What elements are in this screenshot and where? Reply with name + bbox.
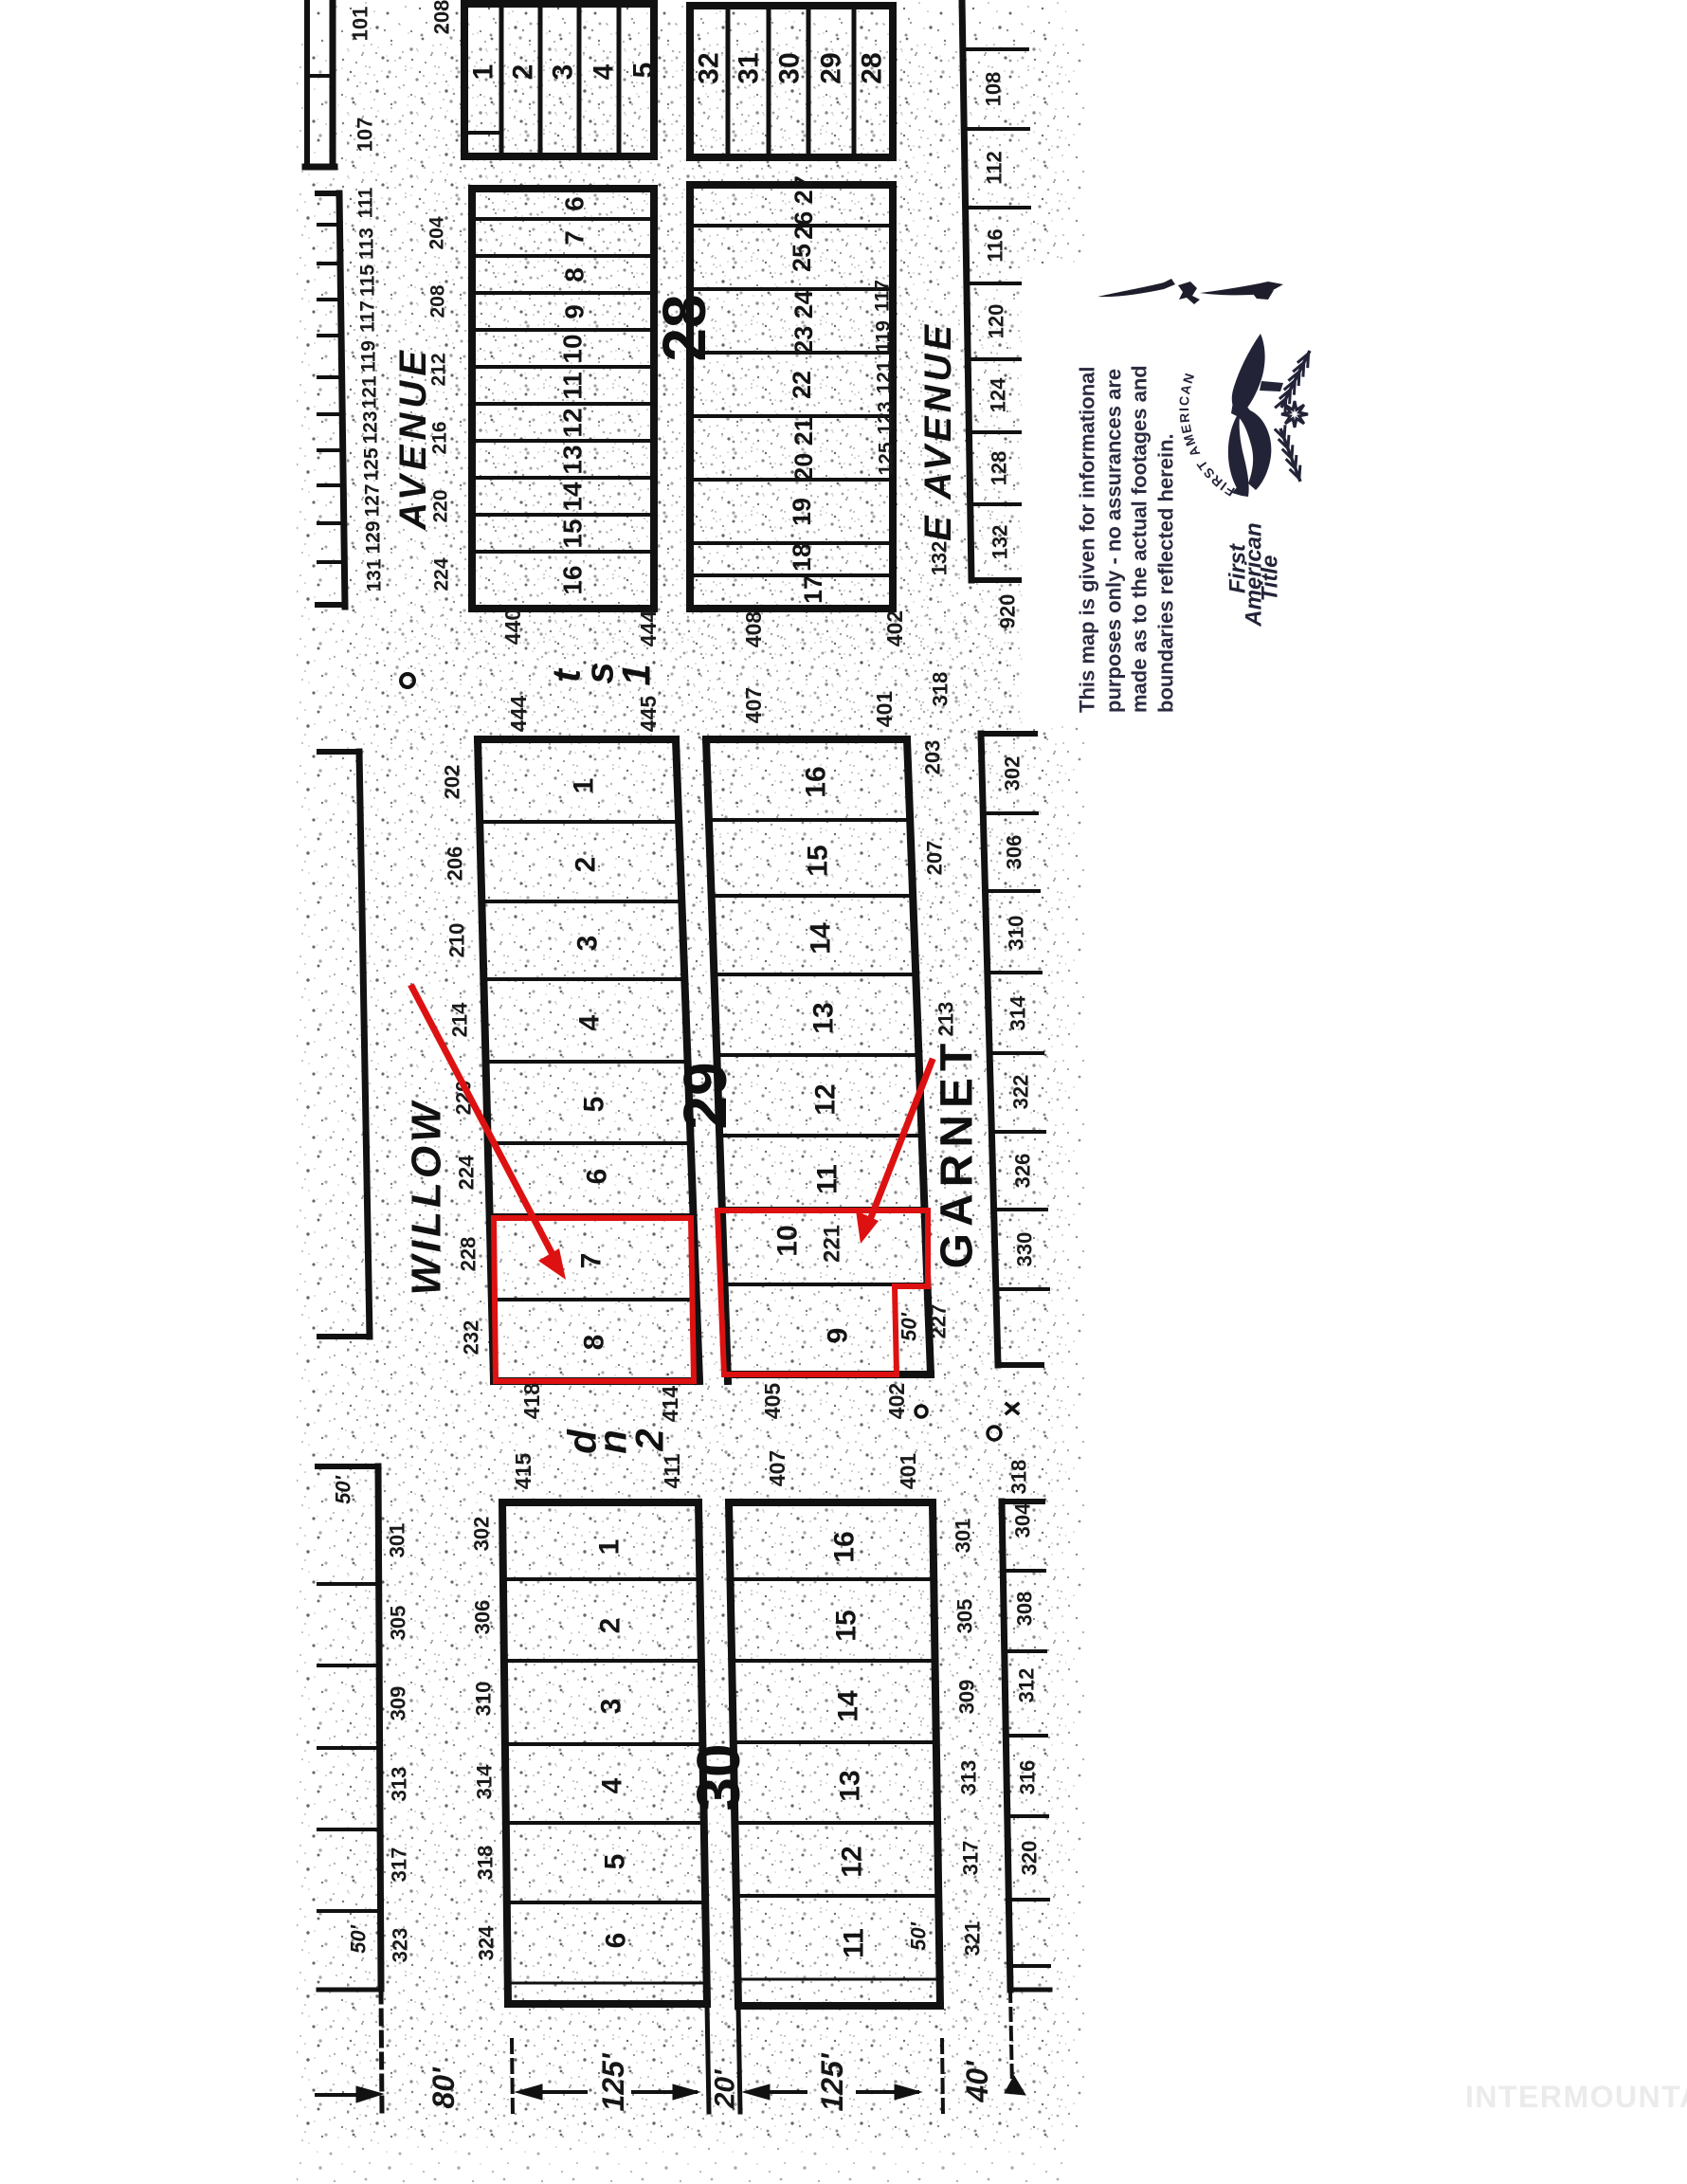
svg-text:407: 407 bbox=[741, 687, 766, 723]
svg-text:317: 317 bbox=[959, 1841, 983, 1876]
svg-text:123: 123 bbox=[360, 410, 382, 444]
svg-text:30: 30 bbox=[684, 1743, 753, 1811]
svg-text:440: 440 bbox=[500, 609, 525, 645]
svg-text:203: 203 bbox=[921, 740, 945, 775]
svg-text:312: 312 bbox=[1015, 1668, 1039, 1703]
svg-text:324: 324 bbox=[475, 1925, 499, 1960]
svg-text:120: 120 bbox=[985, 304, 1008, 339]
svg-text:16: 16 bbox=[829, 1531, 861, 1562]
svg-text:326: 326 bbox=[1011, 1154, 1035, 1189]
svg-text:216: 216 bbox=[429, 421, 451, 454]
svg-text:20': 20' bbox=[710, 2069, 741, 2109]
svg-text:12: 12 bbox=[558, 408, 588, 437]
svg-text:302: 302 bbox=[1001, 756, 1025, 792]
svg-text:314: 314 bbox=[473, 1764, 497, 1799]
svg-text:50': 50' bbox=[907, 1921, 931, 1950]
svg-text:127: 127 bbox=[362, 483, 384, 517]
svg-text:7: 7 bbox=[560, 230, 590, 246]
svg-text:purposes only - no assurances: purposes only - no assurances are bbox=[1102, 369, 1126, 713]
svg-text:125': 125' bbox=[596, 2052, 630, 2111]
svg-text:3: 3 bbox=[596, 1699, 627, 1715]
svg-text:32: 32 bbox=[694, 52, 725, 83]
svg-text:5: 5 bbox=[600, 1854, 631, 1870]
svg-text:16: 16 bbox=[558, 565, 588, 594]
svg-text:920: 920 bbox=[996, 594, 1020, 629]
svg-text:6: 6 bbox=[582, 1169, 613, 1185]
svg-text:306: 306 bbox=[471, 1600, 495, 1635]
svg-text:111: 111 bbox=[355, 187, 377, 218]
svg-text:50': 50' bbox=[347, 1924, 371, 1953]
svg-text:WILLOW: WILLOW bbox=[404, 1099, 450, 1295]
svg-text:4: 4 bbox=[589, 64, 620, 80]
svg-text:304: 304 bbox=[1011, 1502, 1035, 1538]
svg-text:116: 116 bbox=[984, 228, 1007, 263]
svg-text:202: 202 bbox=[441, 765, 464, 800]
svg-text:112: 112 bbox=[983, 151, 1007, 185]
svg-text:306: 306 bbox=[1003, 835, 1026, 870]
svg-text:212: 212 bbox=[428, 353, 450, 386]
svg-text:11: 11 bbox=[839, 1928, 870, 1958]
svg-text:113: 113 bbox=[356, 227, 378, 260]
svg-text:411: 411 bbox=[660, 1453, 684, 1488]
svg-text:80': 80' bbox=[426, 2066, 461, 2109]
svg-text:415: 415 bbox=[511, 1453, 535, 1490]
svg-text:15: 15 bbox=[558, 519, 588, 548]
svg-text:309: 309 bbox=[387, 1686, 410, 1721]
svg-text:13: 13 bbox=[808, 1002, 840, 1033]
svg-text:25: 25 bbox=[788, 244, 816, 272]
svg-text:321: 321 bbox=[961, 1921, 985, 1956]
svg-text:11: 11 bbox=[558, 372, 588, 400]
svg-text:108: 108 bbox=[982, 72, 1006, 107]
svg-text:320: 320 bbox=[1018, 1841, 1042, 1876]
svg-text:50': 50' bbox=[332, 1475, 355, 1503]
svg-text:26 27: 26 27 bbox=[789, 175, 818, 240]
svg-text:224: 224 bbox=[431, 557, 453, 591]
svg-text:6: 6 bbox=[601, 1933, 632, 1949]
svg-text:Title: Title bbox=[1258, 555, 1283, 602]
svg-text:15: 15 bbox=[831, 1610, 862, 1641]
svg-text:9: 9 bbox=[823, 1328, 854, 1344]
svg-text:123: 123 bbox=[875, 401, 897, 434]
svg-text:13: 13 bbox=[558, 445, 588, 474]
svg-text:224: 224 bbox=[455, 1155, 479, 1190]
svg-text:10: 10 bbox=[558, 334, 588, 363]
svg-text:made as to the actual footages: made as to the actual footages and bbox=[1128, 365, 1152, 713]
svg-text:3: 3 bbox=[572, 936, 604, 952]
svg-text:132: 132 bbox=[928, 541, 952, 576]
svg-text:330: 330 bbox=[1013, 1232, 1037, 1267]
svg-text:414: 414 bbox=[658, 1386, 682, 1423]
svg-text:16: 16 bbox=[801, 766, 832, 797]
svg-text:322: 322 bbox=[1009, 1075, 1033, 1110]
svg-text:314: 314 bbox=[1007, 995, 1030, 1030]
svg-text:22: 22 bbox=[788, 371, 816, 399]
svg-text:318: 318 bbox=[929, 672, 952, 707]
svg-text:121: 121 bbox=[359, 375, 381, 409]
svg-text:40': 40' bbox=[960, 2060, 994, 2103]
svg-text:INTERMOUNTAIN: INTERMOUNTAIN bbox=[1465, 2080, 1687, 2114]
svg-text:This map is given for informat: This map is given for informational bbox=[1076, 367, 1099, 714]
svg-text:220: 220 bbox=[430, 489, 452, 522]
svg-text:210: 210 bbox=[445, 923, 469, 958]
svg-text:5: 5 bbox=[579, 1097, 610, 1113]
svg-text:7: 7 bbox=[576, 1253, 608, 1269]
svg-text:28: 28 bbox=[857, 52, 888, 83]
svg-text:206: 206 bbox=[444, 846, 467, 882]
svg-text:18: 18 bbox=[788, 543, 816, 572]
svg-text:305: 305 bbox=[953, 1599, 977, 1634]
svg-text:11: 11 bbox=[812, 1164, 843, 1194]
svg-text:310: 310 bbox=[1005, 916, 1028, 951]
svg-text:119: 119 bbox=[873, 320, 895, 353]
svg-text:14: 14 bbox=[806, 922, 837, 955]
svg-text:117: 117 bbox=[357, 300, 379, 333]
svg-text:408: 408 bbox=[741, 611, 766, 648]
svg-text:227: 227 bbox=[927, 1304, 951, 1339]
svg-text:1: 1 bbox=[594, 1539, 626, 1556]
svg-text:204: 204 bbox=[426, 216, 448, 249]
svg-text:115: 115 bbox=[357, 264, 379, 297]
svg-text:131: 131 bbox=[364, 558, 386, 591]
svg-text:14: 14 bbox=[558, 482, 588, 512]
svg-text:23 24: 23 24 bbox=[789, 290, 818, 355]
svg-text:232: 232 bbox=[460, 1320, 483, 1356]
svg-text:405: 405 bbox=[760, 1383, 785, 1420]
svg-text:17: 17 bbox=[799, 575, 827, 604]
svg-text:401: 401 bbox=[896, 1453, 920, 1490]
svg-text:8: 8 bbox=[560, 267, 590, 282]
svg-text:128: 128 bbox=[988, 451, 1011, 486]
svg-text:2: 2 bbox=[595, 1618, 626, 1634]
svg-text:50': 50' bbox=[898, 1312, 921, 1340]
svg-text:101: 101 bbox=[349, 7, 372, 42]
svg-text:119: 119 bbox=[358, 340, 380, 373]
svg-text:125': 125' bbox=[815, 2052, 849, 2111]
svg-text:444: 444 bbox=[506, 696, 531, 733]
svg-text:318: 318 bbox=[1007, 1460, 1031, 1495]
svg-text:5: 5 bbox=[628, 63, 660, 79]
svg-text:301: 301 bbox=[952, 1519, 975, 1554]
svg-text:boundaries reflected herein.: boundaries reflected herein. bbox=[1154, 433, 1178, 713]
svg-text:221: 221 bbox=[820, 1225, 845, 1263]
svg-text:316: 316 bbox=[1016, 1760, 1040, 1795]
svg-text:301: 301 bbox=[386, 1523, 409, 1558]
svg-text:305: 305 bbox=[387, 1606, 410, 1641]
svg-text:107: 107 bbox=[354, 118, 377, 153]
svg-text:302: 302 bbox=[470, 1517, 494, 1552]
svg-text:GARNET: GARNET bbox=[933, 1037, 983, 1269]
svg-text:407: 407 bbox=[765, 1450, 789, 1486]
svg-text:418: 418 bbox=[519, 1383, 544, 1420]
svg-text:19: 19 bbox=[788, 498, 816, 526]
svg-text:310: 310 bbox=[472, 1682, 496, 1717]
svg-text:12: 12 bbox=[810, 1083, 842, 1115]
svg-text:228: 228 bbox=[457, 1237, 481, 1272]
svg-text:31: 31 bbox=[734, 52, 765, 83]
svg-text:214: 214 bbox=[448, 1002, 472, 1037]
svg-text:6: 6 bbox=[560, 196, 590, 211]
svg-text:117: 117 bbox=[872, 280, 894, 312]
svg-text:207: 207 bbox=[923, 841, 947, 876]
svg-text:E AVENUE: E AVENUE bbox=[917, 321, 959, 541]
svg-text:121: 121 bbox=[874, 360, 896, 393]
svg-text:3: 3 bbox=[548, 64, 579, 81]
svg-text:13: 13 bbox=[835, 1770, 866, 1801]
svg-text:20 21: 20 21 bbox=[789, 417, 818, 482]
svg-text:313: 313 bbox=[957, 1760, 981, 1795]
svg-text:30: 30 bbox=[774, 52, 806, 83]
svg-text:d: d bbox=[560, 1429, 605, 1454]
svg-text:2: 2 bbox=[508, 64, 539, 81]
svg-text:129: 129 bbox=[363, 520, 385, 554]
svg-text:213: 213 bbox=[934, 1002, 958, 1037]
svg-text:402: 402 bbox=[882, 610, 907, 646]
svg-text:14: 14 bbox=[833, 1690, 864, 1722]
svg-text:12: 12 bbox=[837, 1846, 868, 1877]
svg-text:208: 208 bbox=[427, 284, 449, 318]
svg-text:t: t bbox=[544, 667, 589, 682]
svg-text:9: 9 bbox=[560, 304, 590, 319]
svg-text:2: 2 bbox=[571, 857, 602, 873]
svg-text:309: 309 bbox=[955, 1680, 979, 1715]
svg-text:125: 125 bbox=[361, 447, 383, 481]
svg-text:323: 323 bbox=[389, 1928, 412, 1963]
svg-text:402: 402 bbox=[884, 1383, 909, 1419]
svg-text:208: 208 bbox=[430, 0, 454, 34]
svg-text:445: 445 bbox=[636, 696, 661, 733]
svg-text:29: 29 bbox=[816, 52, 847, 83]
svg-text:10: 10 bbox=[772, 1225, 804, 1256]
svg-text:318: 318 bbox=[474, 1846, 498, 1881]
svg-text:444: 444 bbox=[636, 610, 661, 647]
svg-text:124: 124 bbox=[987, 377, 1010, 412]
svg-text:4: 4 bbox=[597, 1777, 628, 1793]
svg-text:308: 308 bbox=[1013, 1592, 1037, 1627]
svg-text:401: 401 bbox=[872, 691, 897, 728]
svg-text:125: 125 bbox=[876, 442, 898, 475]
svg-text:317: 317 bbox=[388, 1847, 411, 1883]
svg-text:313: 313 bbox=[388, 1767, 411, 1802]
svg-text:15: 15 bbox=[803, 845, 834, 876]
svg-text:29: 29 bbox=[671, 1062, 739, 1129]
svg-text:4: 4 bbox=[574, 1014, 606, 1030]
svg-text:1: 1 bbox=[468, 64, 499, 81]
svg-text:1: 1 bbox=[569, 778, 600, 794]
svg-text:8: 8 bbox=[579, 1335, 610, 1351]
svg-text:132: 132 bbox=[989, 525, 1012, 560]
